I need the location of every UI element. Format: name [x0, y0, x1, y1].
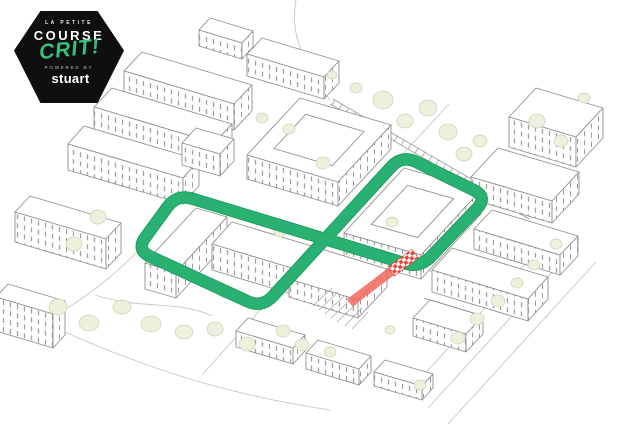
badge-title-crit: CRIT!: [38, 36, 101, 63]
badge-pretitle: LA PETITE: [45, 20, 93, 26]
course-map-poster: LA PETITE COURSE CRIT! POWERED BY stuart: [0, 0, 624, 441]
badge-brand-row: stuart: [49, 71, 90, 86]
badge-powered-by: POWERED BY: [45, 65, 94, 70]
badge-brand-name: stuart: [52, 71, 90, 86]
